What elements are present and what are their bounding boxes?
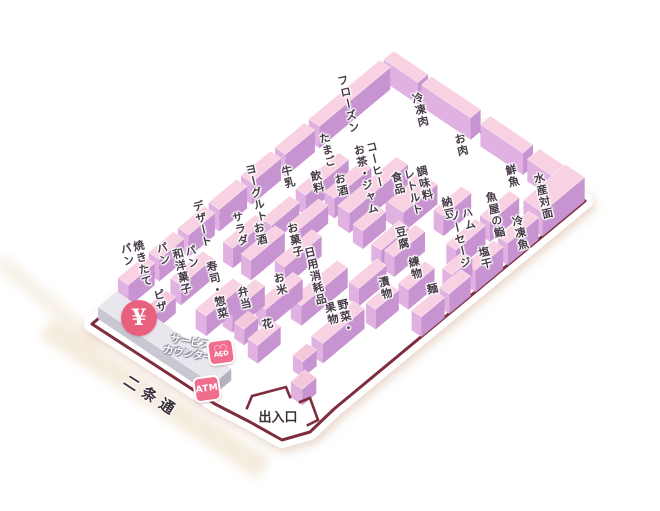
yen-service-icon: ¥ <box>121 300 157 336</box>
entrance-exit-label: 出入口 <box>258 407 297 426</box>
store-map-graphic <box>0 0 660 511</box>
store-map: ¥ サービス カウンター ♡ AED ATM 出入口 二条通 フローズンたまご牛… <box>0 0 660 511</box>
atm-icon: ATM <box>192 374 222 404</box>
aed-icon: ♡ AED <box>206 337 236 367</box>
yen-symbol: ¥ <box>131 305 146 331</box>
